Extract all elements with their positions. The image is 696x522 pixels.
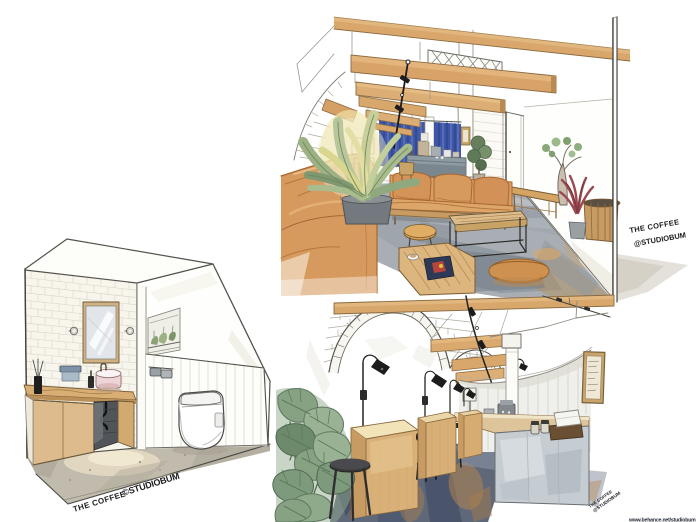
svg-text:www.behance.net/studiobum: www.behance.net/studiobum xyxy=(628,518,696,522)
